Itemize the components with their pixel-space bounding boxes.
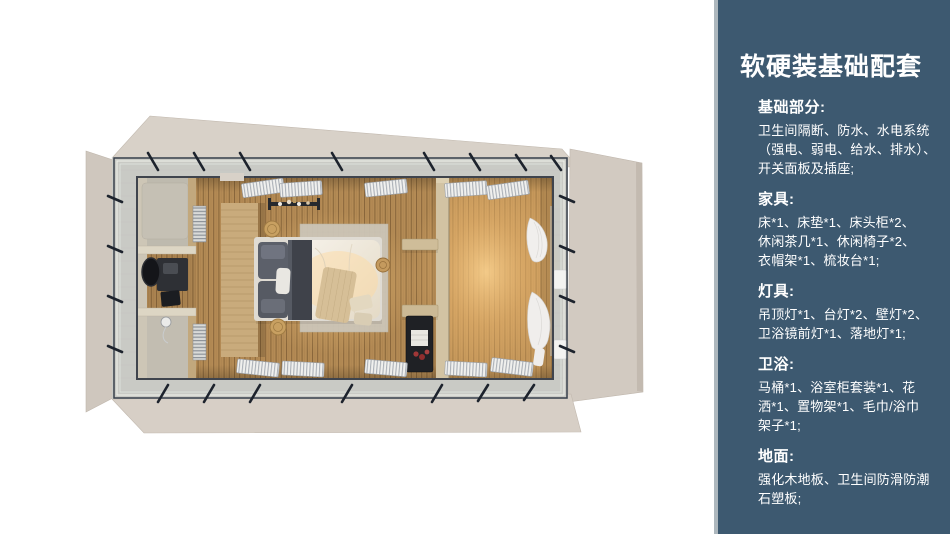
towel-rack-top bbox=[193, 206, 206, 242]
floorplan-render bbox=[0, 0, 718, 534]
info-sidebar: 软硬装基础配套 基础部分: 卫生间隔断、防水、水电系统 （强电、弱电、给水、排水… bbox=[718, 0, 950, 534]
wardrobe-interior bbox=[142, 183, 188, 239]
plant-basket bbox=[376, 258, 390, 272]
wall-unit-top bbox=[554, 270, 566, 289]
section-furniture-line-2: 休闲茶几*1、休闲椅子*2、 bbox=[758, 232, 938, 251]
section-bathroom-line-1: 马桶*1、浴室柜套装*1、花 bbox=[758, 378, 938, 397]
section-flooring-heading: 地面: bbox=[758, 449, 938, 464]
section-bathroom-line-3: 架子*1; bbox=[758, 416, 938, 435]
section-foundation-line-2: （强电、弱电、给水、排水）、 bbox=[758, 140, 938, 159]
section-foundation-line-3: 开关面板及插座; bbox=[758, 159, 938, 178]
roof-flap-right-edge bbox=[636, 162, 643, 392]
towel-rack-bottom bbox=[193, 324, 206, 360]
room-top-view bbox=[0, 0, 718, 534]
section-bathroom-line-2: 洒*1、置物架*1、毛巾/浴巾 bbox=[758, 397, 938, 416]
louver-panel bbox=[280, 181, 323, 198]
section-furniture: 家具: 床*1、床垫*1、床头柜*2、 休闲茶几*1、休闲椅子*2、 衣帽架*1… bbox=[758, 192, 938, 270]
wall-unit-bottom bbox=[554, 340, 566, 359]
bathroom-wall-b bbox=[137, 308, 196, 316]
sidebar-edge bbox=[714, 0, 718, 534]
red-flowers bbox=[413, 351, 418, 356]
storage-rack bbox=[406, 316, 433, 372]
bathroom-area bbox=[137, 178, 206, 378]
section-bathroom: 卫浴: 马桶*1、浴室柜套装*1、花 洒*1、置物架*1、毛巾/浴巾 架子*1; bbox=[758, 357, 938, 435]
page-title: 软硬装基础配套 bbox=[740, 52, 938, 82]
vanity-stool bbox=[160, 290, 180, 307]
section-furniture-line-3: 衣帽架*1、梳妆台*1; bbox=[758, 251, 938, 270]
section-furniture-heading: 家具: bbox=[758, 192, 938, 207]
section-flooring-line-1: 强化木地板、卫生间防滑防潮 bbox=[758, 470, 938, 489]
bathroom-wall-a bbox=[137, 246, 196, 254]
slide: 软硬装基础配套 基础部分: 卫生间隔断、防水、水电系统 （强电、弱电、给水、排水… bbox=[0, 0, 950, 534]
door-threshold bbox=[220, 173, 244, 181]
roof-flap-left bbox=[86, 151, 113, 412]
nightstand-pouf-top bbox=[264, 221, 280, 237]
section-flooring-line-2: 石塑板; bbox=[758, 489, 938, 508]
section-foundation-line-1: 卫生间隔断、防水、水电系统 bbox=[758, 121, 938, 140]
roof-flap-right bbox=[568, 149, 643, 402]
section-flooring: 地面: 强化木地板、卫生间防滑防潮 石塑板; bbox=[758, 449, 938, 508]
louver-panel bbox=[445, 181, 488, 198]
louver-panel bbox=[445, 361, 488, 377]
accent-pillow bbox=[275, 268, 290, 295]
wall-shelf-top bbox=[402, 239, 438, 253]
section-furniture-line-1: 床*1、床垫*1、床头柜*2、 bbox=[758, 213, 938, 232]
section-foundation-heading: 基础部分: bbox=[758, 100, 938, 115]
vanity-desk bbox=[157, 258, 188, 291]
vanity-mirror bbox=[142, 258, 160, 286]
section-bathroom-heading: 卫浴: bbox=[758, 357, 938, 372]
bed bbox=[254, 237, 382, 326]
nightstand-pouf-bottom bbox=[270, 319, 286, 335]
section-lighting-line-1: 吊顶灯*1、台灯*2、壁灯*2、 bbox=[758, 305, 938, 324]
section-lighting-heading: 灯具: bbox=[758, 284, 938, 299]
section-lighting-line-2: 卫浴镜前灯*1、落地灯*1; bbox=[758, 324, 938, 343]
section-lighting: 灯具: 吊顶灯*1、台灯*2、壁灯*2、 卫浴镜前灯*1、落地灯*1; bbox=[758, 284, 938, 343]
partition-wall bbox=[432, 177, 449, 378]
louver-panel bbox=[282, 361, 325, 377]
section-foundation: 基础部分: 卫生间隔断、防水、水电系统 （强电、弱电、给水、排水）、 开关面板及… bbox=[758, 100, 938, 178]
roof-flap-bottom bbox=[112, 394, 581, 433]
